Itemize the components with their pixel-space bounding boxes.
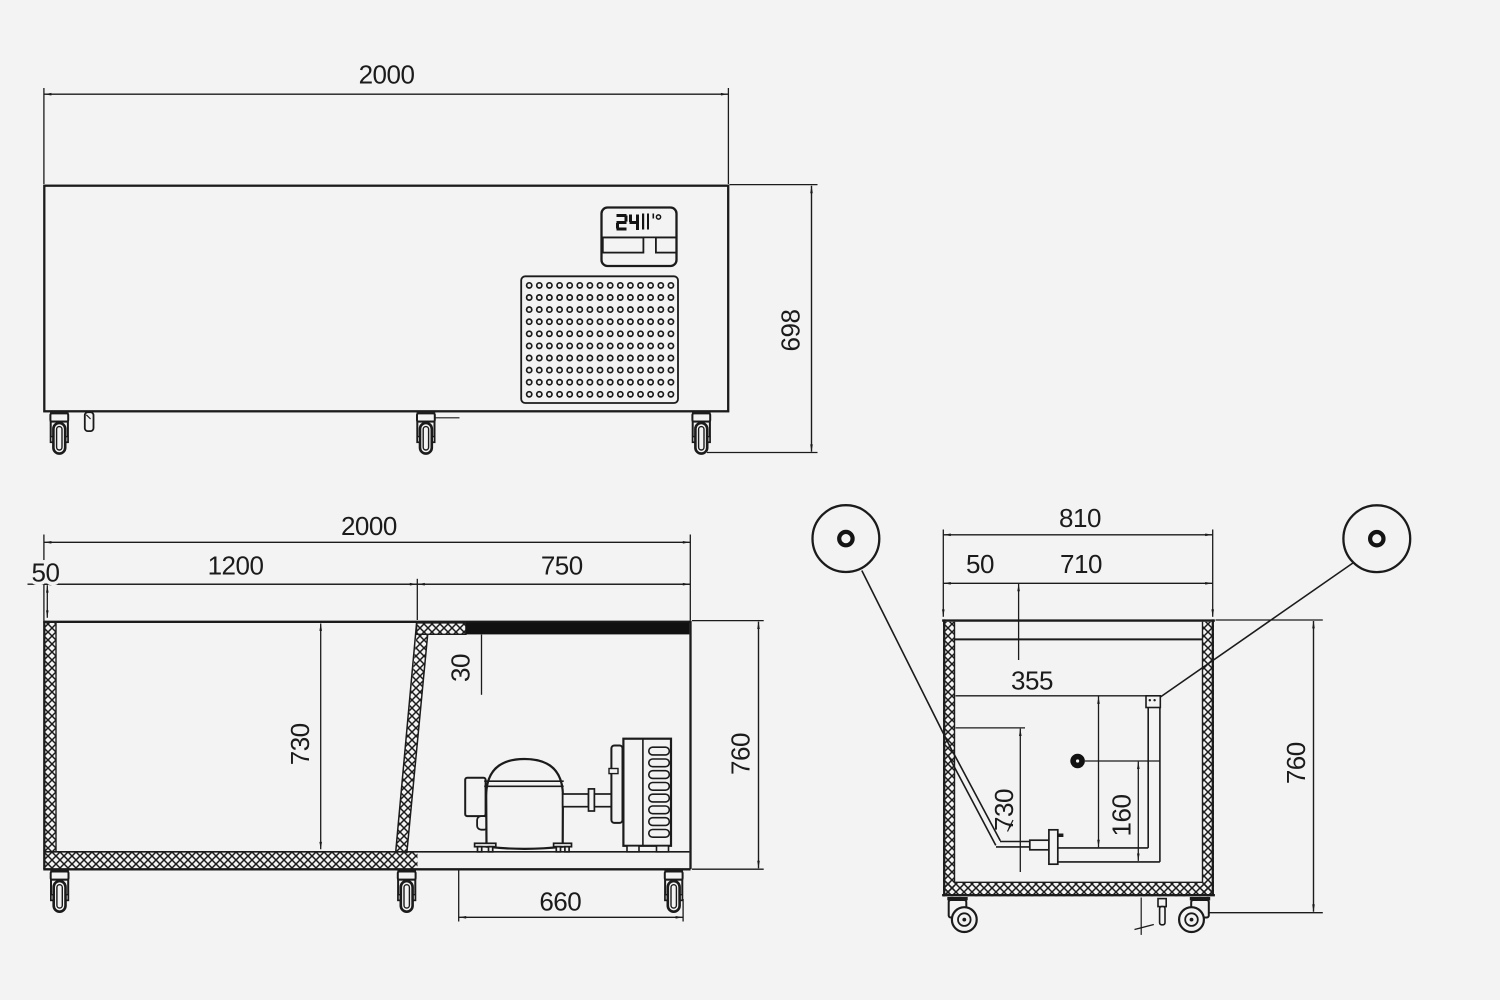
svg-text:810: 810: [1059, 503, 1101, 533]
svg-text:750: 750: [541, 551, 583, 581]
svg-text:355: 355: [1011, 666, 1053, 696]
svg-text:760: 760: [1281, 742, 1311, 784]
svg-text:2000: 2000: [359, 60, 415, 90]
svg-text:1200: 1200: [208, 551, 264, 581]
svg-text:710: 710: [1060, 549, 1102, 579]
svg-text:760: 760: [726, 733, 756, 775]
svg-text:698: 698: [776, 310, 806, 352]
svg-text:30: 30: [446, 654, 476, 682]
svg-text:50: 50: [32, 558, 60, 588]
svg-text:730: 730: [989, 789, 1019, 831]
svg-text:660: 660: [539, 886, 581, 916]
svg-text:2000: 2000: [341, 511, 397, 541]
svg-text:730: 730: [285, 723, 315, 765]
svg-text:160: 160: [1107, 795, 1137, 837]
svg-text:50: 50: [966, 549, 994, 579]
